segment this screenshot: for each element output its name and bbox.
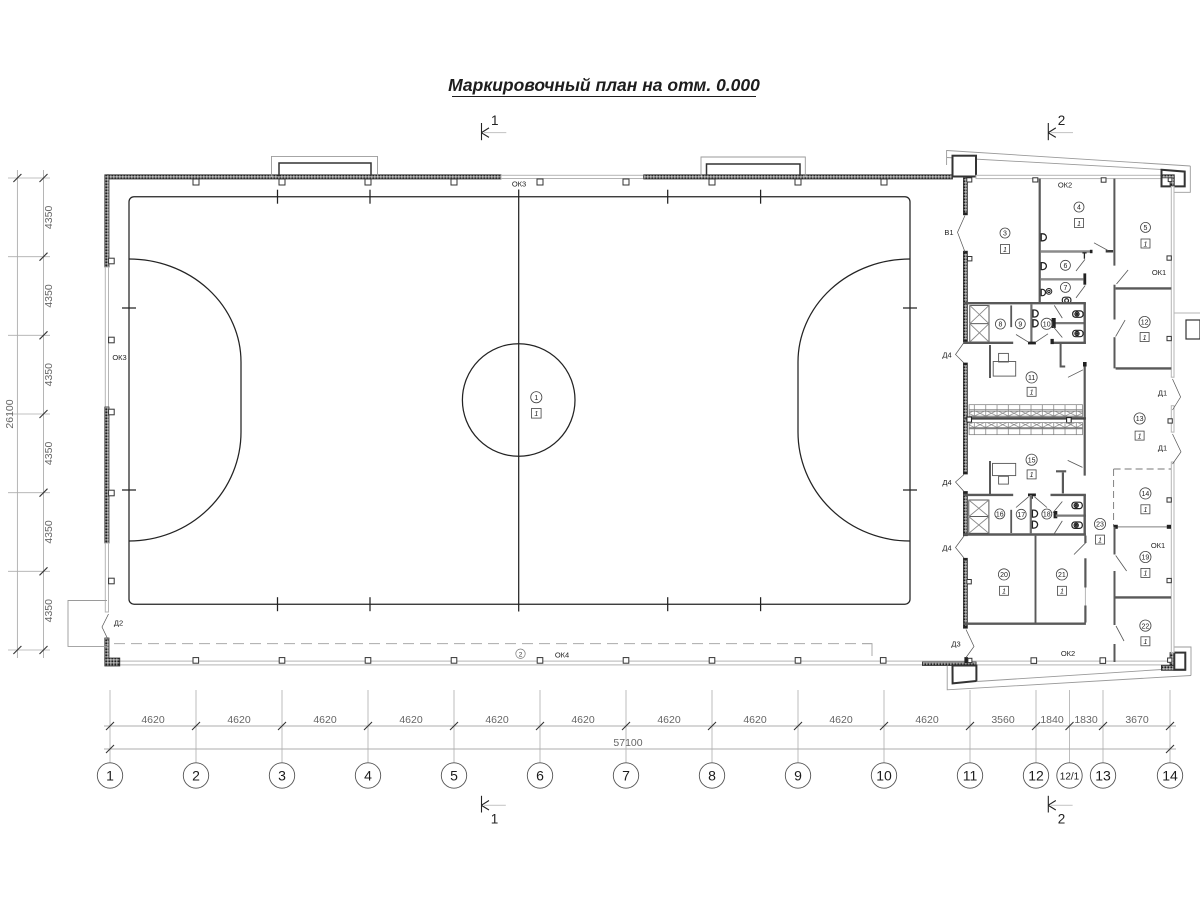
svg-text:11: 11	[1028, 375, 1035, 382]
svg-text:2: 2	[1058, 113, 1066, 128]
svg-text:3: 3	[1003, 231, 1007, 238]
svg-text:21: 21	[1058, 572, 1066, 579]
svg-text:1840: 1840	[1040, 714, 1064, 726]
svg-text:10: 10	[876, 768, 892, 784]
svg-text:1: 1	[1098, 537, 1102, 544]
svg-text:1: 1	[491, 113, 499, 128]
svg-text:Д4: Д4	[942, 544, 951, 553]
svg-text:4: 4	[364, 768, 372, 784]
svg-text:Д4: Д4	[942, 351, 951, 360]
svg-text:4620: 4620	[227, 714, 251, 726]
svg-text:8: 8	[998, 322, 1002, 329]
svg-text:1: 1	[1143, 507, 1147, 514]
svg-text:7: 7	[1063, 285, 1067, 292]
svg-text:4620: 4620	[313, 714, 337, 726]
svg-text:1: 1	[1144, 241, 1148, 248]
svg-text:1: 1	[1030, 472, 1034, 479]
svg-text:1: 1	[1030, 390, 1034, 397]
svg-text:10: 10	[1043, 322, 1051, 329]
svg-text:13: 13	[1095, 768, 1111, 784]
svg-text:Д4: Д4	[942, 478, 951, 487]
svg-text:Д3: Д3	[951, 640, 960, 649]
svg-text:4350: 4350	[43, 520, 55, 544]
svg-text:1: 1	[1143, 335, 1147, 342]
svg-text:2: 2	[192, 768, 200, 784]
svg-text:5: 5	[1144, 225, 1148, 232]
svg-text:15: 15	[1028, 457, 1036, 464]
svg-text:Маркировочный план на отм. 0.0: Маркировочный план на отм. 0.000	[448, 75, 760, 95]
svg-text:26100: 26100	[4, 399, 16, 428]
svg-text:ОК1: ОК1	[1152, 268, 1166, 277]
svg-text:3560: 3560	[991, 714, 1015, 726]
svg-text:12: 12	[1141, 320, 1149, 327]
svg-text:4620: 4620	[743, 714, 767, 726]
svg-text:ОК2: ОК2	[1058, 181, 1072, 190]
svg-text:1: 1	[1143, 639, 1147, 646]
svg-text:1: 1	[1077, 221, 1081, 228]
svg-text:1: 1	[1060, 589, 1064, 596]
svg-text:7: 7	[622, 768, 630, 784]
svg-text:14: 14	[1142, 491, 1150, 498]
svg-text:4620: 4620	[141, 714, 165, 726]
svg-text:4620: 4620	[571, 714, 595, 726]
svg-text:57100: 57100	[613, 737, 642, 749]
svg-text:23: 23	[1096, 522, 1104, 529]
svg-text:1: 1	[1143, 571, 1147, 578]
svg-text:2: 2	[1058, 812, 1066, 827]
svg-text:Д2: Д2	[114, 619, 123, 628]
svg-text:20: 20	[1000, 572, 1008, 579]
svg-text:22: 22	[1142, 623, 1150, 630]
svg-text:1: 1	[491, 812, 499, 827]
svg-text:1: 1	[534, 411, 538, 418]
svg-text:4350: 4350	[43, 284, 55, 308]
svg-text:4620: 4620	[657, 714, 681, 726]
svg-text:Д1: Д1	[1158, 444, 1167, 453]
svg-text:9: 9	[794, 768, 802, 784]
svg-text:4620: 4620	[399, 714, 423, 726]
svg-text:14: 14	[1162, 768, 1178, 784]
svg-text:18: 18	[1043, 512, 1051, 519]
svg-text:9: 9	[1018, 322, 1022, 329]
svg-text:12: 12	[1028, 768, 1044, 784]
svg-text:3: 3	[278, 768, 286, 784]
svg-text:ОК3: ОК3	[512, 180, 526, 189]
svg-text:13: 13	[1136, 416, 1144, 423]
svg-text:4350: 4350	[43, 599, 55, 623]
svg-text:4350: 4350	[43, 206, 55, 230]
svg-text:17: 17	[1017, 512, 1025, 519]
svg-text:12/1: 12/1	[1060, 772, 1080, 783]
svg-text:1: 1	[106, 768, 114, 784]
svg-text:4: 4	[1077, 205, 1081, 212]
svg-text:4620: 4620	[829, 714, 853, 726]
svg-text:1830: 1830	[1074, 714, 1098, 726]
svg-text:6: 6	[1063, 263, 1067, 270]
svg-text:1: 1	[1002, 589, 1006, 596]
svg-text:3670: 3670	[1125, 714, 1149, 726]
svg-text:8: 8	[708, 768, 716, 784]
svg-text:Д1: Д1	[1158, 388, 1167, 397]
svg-text:1: 1	[534, 395, 538, 402]
svg-text:16: 16	[996, 512, 1004, 519]
svg-text:11: 11	[963, 768, 978, 784]
svg-text:ОК2: ОК2	[1061, 649, 1075, 658]
svg-text:1: 1	[1138, 433, 1142, 440]
svg-text:ОК3: ОК3	[112, 353, 126, 362]
svg-text:1: 1	[1003, 247, 1007, 254]
svg-text:ОК1: ОК1	[1151, 541, 1165, 550]
svg-text:4620: 4620	[485, 714, 509, 726]
svg-text:4620: 4620	[915, 714, 939, 726]
svg-text:5: 5	[450, 768, 458, 784]
svg-text:6: 6	[536, 768, 544, 784]
svg-text:19: 19	[1142, 555, 1150, 562]
svg-text:4350: 4350	[43, 442, 55, 466]
svg-text:ОК4: ОК4	[555, 651, 569, 660]
svg-text:2: 2	[519, 651, 523, 658]
svg-text:4350: 4350	[43, 363, 55, 387]
svg-text:В1: В1	[944, 228, 953, 237]
